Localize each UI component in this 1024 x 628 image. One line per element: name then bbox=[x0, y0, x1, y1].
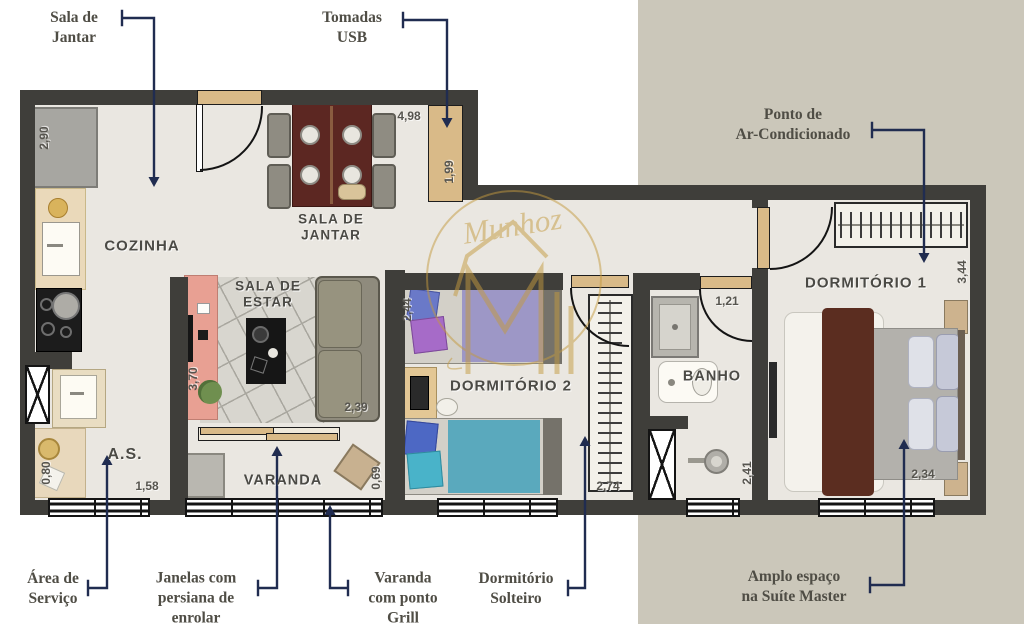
single-bed-blanket bbox=[462, 288, 543, 362]
measurement-closet: 2,74 bbox=[596, 479, 619, 493]
serving-tray bbox=[338, 184, 366, 200]
dinner-plate bbox=[342, 125, 362, 145]
kitchen-faucet bbox=[47, 244, 63, 247]
callout-tomadas-usb: Tomadas USB bbox=[322, 8, 382, 48]
kitchen-decor bbox=[48, 198, 68, 218]
coffee-table-decor bbox=[252, 326, 269, 343]
callout-sala-jantar: Sala de Jantar bbox=[50, 8, 98, 48]
dining-chair bbox=[267, 113, 291, 158]
wall-banho-top bbox=[633, 273, 700, 290]
wall-top-right bbox=[463, 185, 986, 200]
dinner-plate bbox=[300, 125, 320, 145]
wall-step bbox=[463, 90, 478, 200]
suite-hangers bbox=[840, 212, 962, 238]
single-bed2-pillow bbox=[406, 451, 443, 490]
dinner-plate bbox=[300, 165, 320, 185]
single-bed-headboard bbox=[543, 286, 562, 364]
bed-pillow bbox=[908, 398, 934, 450]
banho-door bbox=[700, 276, 752, 289]
callout-ar-condicionado: Ponto de Ar-Condicionado bbox=[736, 105, 851, 145]
cooktop-burner bbox=[41, 322, 55, 336]
wall-dorm2-top bbox=[385, 273, 563, 290]
wall-right bbox=[970, 185, 986, 515]
measurement-estar-width: 2,39 bbox=[344, 400, 367, 414]
measurement-fridge: 2,90 bbox=[37, 126, 51, 149]
closet-hangers bbox=[598, 302, 622, 484]
room-label-as: A.S. bbox=[107, 446, 142, 464]
laundry-basket bbox=[38, 438, 60, 460]
dinner-plate bbox=[342, 165, 362, 185]
measurement-social-width: 4,98 bbox=[397, 109, 420, 123]
measurement-varanda-depth: 0,69 bbox=[369, 466, 383, 489]
bed-pillow bbox=[936, 334, 960, 390]
single-bed2-blanket bbox=[448, 420, 540, 493]
room-label-sala-estar: SALA DE ESTAR bbox=[235, 278, 301, 309]
callout-janelas: Janelas com persiana de enrolar bbox=[156, 568, 237, 627]
shower-drain bbox=[672, 324, 678, 330]
dorm2-door bbox=[571, 275, 629, 288]
measurement-banho-door: 1,21 bbox=[715, 294, 738, 308]
wall-banho-stub bbox=[648, 416, 688, 429]
cooktop-burner bbox=[60, 326, 72, 338]
window-dorm2 bbox=[437, 498, 558, 517]
single-bed2-headboard bbox=[543, 418, 562, 495]
sliding-door-panel bbox=[200, 427, 274, 435]
measurement-dorm2-depth: 2,44 bbox=[400, 298, 414, 321]
room-label-dormitorio1: DORMITÓRIO 1 bbox=[805, 274, 927, 291]
measurement-estar-depth: 3,70 bbox=[186, 367, 200, 390]
room-label-varanda: VARANDA bbox=[244, 473, 322, 490]
plant bbox=[198, 380, 222, 404]
single-bed-pillow bbox=[410, 316, 448, 354]
table-runner bbox=[330, 106, 333, 204]
suite-tv bbox=[769, 362, 777, 438]
measurement-dorm1-width: 2,34 bbox=[911, 467, 934, 481]
measurement-sideboard: 1,99 bbox=[442, 160, 456, 183]
room-label-banho: BANHO bbox=[683, 369, 741, 386]
room-label-dormitorio2: DORMITÓRIO 2 bbox=[450, 377, 572, 394]
bed-pillow bbox=[936, 396, 960, 452]
entrance-door-leaf bbox=[196, 104, 203, 172]
sideboard-usb bbox=[428, 105, 463, 202]
vent-as bbox=[25, 365, 50, 424]
laptop bbox=[410, 376, 429, 410]
desk-chair bbox=[436, 398, 458, 416]
callout-dorm-solteiro: Dormitório Solteiro bbox=[479, 569, 554, 609]
tv-shelf-decor bbox=[197, 303, 210, 314]
entrance-door bbox=[197, 90, 262, 105]
bathroom-faucet bbox=[668, 379, 675, 386]
vent-banho bbox=[648, 429, 676, 500]
laundry-basin bbox=[60, 375, 97, 419]
bed-pillow bbox=[908, 336, 934, 388]
toilet-lid bbox=[711, 456, 722, 467]
measurement-dorm1-depth: 3,44 bbox=[955, 260, 969, 283]
bed-throw bbox=[822, 308, 874, 496]
window-dorm1 bbox=[818, 498, 935, 517]
coffee-table-decor bbox=[268, 348, 278, 358]
dining-chair bbox=[372, 113, 396, 158]
sofa-cushion bbox=[318, 280, 362, 348]
window-as bbox=[48, 498, 150, 517]
laundry-faucet bbox=[70, 392, 84, 395]
measurement-as-width: 1,58 bbox=[135, 479, 158, 493]
callout-area-servico: Área de Serviço bbox=[27, 569, 79, 609]
balcony-cabinet bbox=[186, 453, 225, 498]
room-label-cozinha: COZINHA bbox=[104, 237, 179, 254]
floorplan-page: { "rooms": { "cozinha": {"label": "COZIN… bbox=[0, 0, 1024, 624]
room-label-sala-jantar: SALA DE JANTAR bbox=[298, 211, 364, 242]
measurement-banho-depth: 2,41 bbox=[740, 461, 754, 484]
sliding-door-panel bbox=[266, 433, 338, 441]
dorm1-door bbox=[757, 207, 770, 269]
bed-headboard bbox=[958, 330, 965, 460]
window-varanda bbox=[185, 498, 383, 517]
wall-left bbox=[20, 90, 35, 515]
dining-chair bbox=[372, 164, 396, 209]
wall-dorm1-left bbox=[752, 268, 768, 500]
tv-shelf-decor bbox=[198, 330, 208, 340]
kitchen-sink bbox=[42, 222, 80, 276]
measurement-as-depth: 0,80 bbox=[39, 461, 53, 484]
window-banho bbox=[686, 498, 740, 517]
cooking-pot bbox=[52, 292, 80, 320]
dining-chair bbox=[267, 164, 291, 209]
callout-varanda-grill: Varanda com ponto Grill bbox=[368, 568, 437, 627]
callout-suite-master: Amplo espaço na Suíte Master bbox=[741, 567, 846, 607]
